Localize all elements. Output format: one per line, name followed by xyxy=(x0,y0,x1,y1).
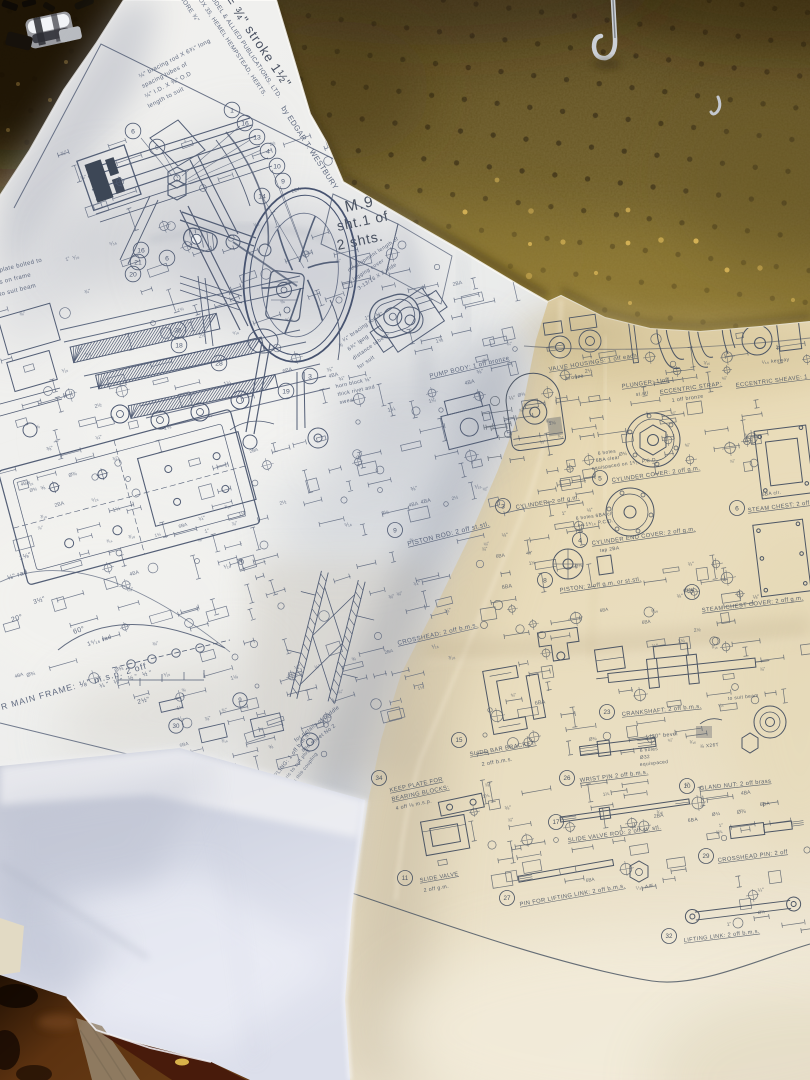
svg-text:16: 16 xyxy=(137,247,145,254)
svg-text:⅛": ⅛" xyxy=(501,532,508,539)
svg-text:6: 6 xyxy=(165,255,169,262)
svg-text:10: 10 xyxy=(273,163,281,170)
svg-text:6: 6 xyxy=(131,128,135,135)
svg-text:28: 28 xyxy=(215,360,223,367)
svg-text:³⁄₁₆: ³⁄₁₆ xyxy=(703,360,710,367)
svg-text:⅛": ⅛" xyxy=(752,594,759,601)
svg-text:16: 16 xyxy=(241,120,249,127)
svg-text:⅜": ⅜" xyxy=(504,805,511,812)
svg-text:⅛": ⅛" xyxy=(586,507,593,514)
svg-text:5: 5 xyxy=(598,475,602,482)
svg-text:Ø⅜: Ø⅜ xyxy=(757,909,765,915)
svg-text:8: 8 xyxy=(543,577,547,584)
svg-text:32: 32 xyxy=(666,933,673,940)
svg-text:³⁄₁₆: ³⁄₁₆ xyxy=(689,739,696,746)
svg-text:9: 9 xyxy=(281,178,285,185)
svg-text:9: 9 xyxy=(393,527,397,534)
svg-text:20: 20 xyxy=(129,271,137,278)
svg-text:¼": ¼" xyxy=(757,887,764,894)
svg-text:26: 26 xyxy=(564,775,571,782)
svg-text:¾": ¾" xyxy=(687,561,694,568)
svg-text:Ø⅜: Ø⅜ xyxy=(618,451,628,458)
svg-text:27: 27 xyxy=(504,895,511,902)
svg-text:30: 30 xyxy=(173,723,180,730)
svg-text:18: 18 xyxy=(175,342,183,349)
svg-text:3: 3 xyxy=(308,373,312,380)
svg-text:9: 9 xyxy=(238,697,242,704)
svg-text:17: 17 xyxy=(553,819,560,826)
svg-text:6: 6 xyxy=(735,505,739,512)
svg-text:21: 21 xyxy=(134,259,142,266)
svg-text:¼": ¼" xyxy=(508,395,515,402)
svg-text:⅞": ⅞" xyxy=(481,546,488,553)
svg-text:11: 11 xyxy=(402,875,409,882)
svg-text:36: 36 xyxy=(174,327,182,334)
svg-text:34: 34 xyxy=(376,775,383,782)
svg-text:⅜": ⅜" xyxy=(676,593,683,600)
svg-text:⁵⁄₁₆: ⁵⁄₁₆ xyxy=(650,607,658,615)
svg-text:³⁄₁₆: ³⁄₁₆ xyxy=(557,433,563,439)
svg-text:1: 1 xyxy=(230,107,234,114)
svg-text:Ø32: Ø32 xyxy=(640,754,651,761)
svg-text:1¼: 1¼ xyxy=(602,791,609,797)
svg-text:13: 13 xyxy=(253,134,261,141)
svg-text:4: 4 xyxy=(266,148,270,155)
svg-text:9: 9 xyxy=(155,144,159,151)
svg-text:⅞": ⅞" xyxy=(760,666,766,672)
svg-text:3: 3 xyxy=(501,503,505,510)
svg-text:19: 19 xyxy=(282,388,290,395)
svg-text:Ø¼: Ø¼ xyxy=(712,811,722,818)
svg-text:³⁄₁₆: ³⁄₁₆ xyxy=(656,809,663,816)
svg-text:29: 29 xyxy=(703,853,710,860)
svg-text:15: 15 xyxy=(456,737,463,744)
svg-text:23: 23 xyxy=(604,709,611,716)
svg-text:14: 14 xyxy=(258,193,266,200)
